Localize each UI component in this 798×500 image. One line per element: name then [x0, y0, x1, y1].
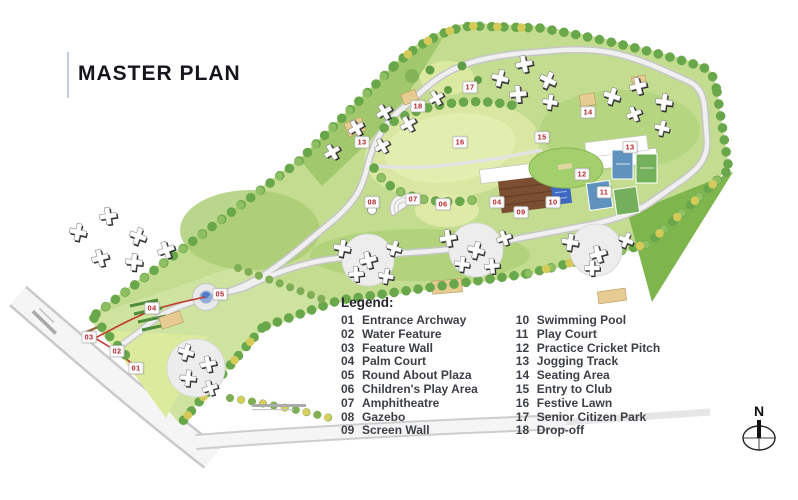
legend-item: 17Senior Citizen Park: [516, 411, 660, 425]
north-compass-icon: N: [733, 398, 785, 462]
map-marker-17: 17: [463, 81, 478, 93]
title-rule: [67, 52, 69, 98]
legend-item: 16Festive Lawn: [516, 397, 660, 411]
map-marker-07: 07: [406, 193, 421, 205]
legend-column-1: 01Entrance Archway 02Water Feature 03Fea…: [341, 314, 478, 438]
map-marker-04: 04: [145, 302, 160, 314]
page-title: MASTER PLAN: [78, 62, 241, 86]
map-marker-08: 08: [365, 196, 380, 208]
legend-item: 06Children's Play Area: [341, 383, 478, 397]
legend-item: 09Screen Wall: [341, 424, 478, 438]
map-marker-05: 05: [213, 288, 228, 300]
legend-item: 02Water Feature: [341, 328, 478, 342]
map-marker-14: 14: [581, 106, 596, 118]
map-marker-16: 16: [453, 136, 468, 148]
map-marker-13: 13: [355, 136, 370, 148]
map-marker-18: 18: [411, 100, 426, 112]
map-marker-04b: 04: [490, 196, 505, 208]
legend-item: 15Entry to Club: [516, 383, 660, 397]
legend-item: 13Jogging Track: [516, 355, 660, 369]
map-marker-03: 03: [82, 331, 97, 343]
legend-item: 11Play Court: [516, 328, 660, 342]
legend-item: 10Swimming Pool: [516, 314, 660, 328]
map-marker-02: 02: [110, 345, 125, 357]
legend-item: 12Practice Cricket Pitch: [516, 342, 660, 356]
legend-column-2: 10Swimming Pool 11Play Court 12Practice …: [516, 314, 660, 438]
cricket-pitch: [529, 148, 603, 188]
compass-north-label: N: [754, 403, 764, 419]
master-plan-page: MASTER PLAN 01 02 03 04 05 06 07 08 09 1…: [0, 0, 798, 500]
map-marker-11: 11: [597, 186, 612, 198]
legend-heading: Legend:: [341, 295, 660, 310]
legend-item: 01Entrance Archway: [341, 314, 478, 328]
legend-item: 03Feature Wall: [341, 342, 478, 356]
map-marker-09: 09: [514, 206, 529, 218]
map-marker-12: 12: [575, 168, 590, 180]
map-marker-10: 10: [546, 196, 561, 208]
legend-item: 07Amphitheatre: [341, 397, 478, 411]
legend-item: 18Drop-off: [516, 424, 660, 438]
legend: Legend: 01Entrance Archway 02Water Featu…: [341, 295, 660, 438]
legend-item: 14Seating Area: [516, 369, 660, 383]
map-marker-15: 15: [535, 131, 550, 143]
legend-item: 08Gazebo: [341, 411, 478, 425]
map-marker-01: 01: [129, 362, 144, 374]
map-marker-06: 06: [436, 198, 451, 210]
legend-item: 04Palm Court: [341, 355, 478, 369]
map-marker-13b: 13: [623, 141, 638, 153]
legend-item: 05Round About Plaza: [341, 369, 478, 383]
